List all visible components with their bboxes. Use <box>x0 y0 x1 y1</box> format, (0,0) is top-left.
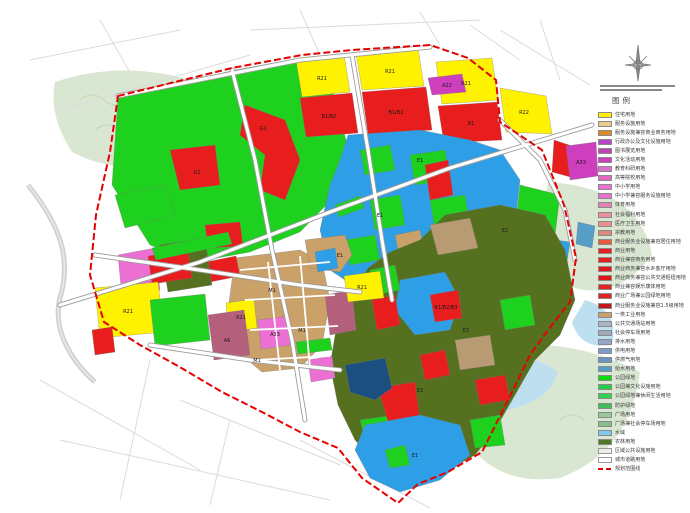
legend-item: 服务设施用地 <box>598 119 690 128</box>
legend-label: 医疗卫生用地 <box>615 221 645 227</box>
legend-item: 供燃气用地 <box>598 356 690 365</box>
legend-item: 住宅用地 <box>598 110 690 119</box>
legend-label: 社会福利用地 <box>615 212 645 218</box>
legend-swatch <box>598 193 612 199</box>
legend-label: 防护绿地 <box>615 403 635 409</box>
legend-label: 商业广场兼公园绿地用地 <box>615 294 671 300</box>
legend-item: 商业商务兼容公共交通枢纽用地 <box>598 274 690 283</box>
scale-segment <box>627 85 645 87</box>
legend-item: 商业服务业设施兼容居住用地 <box>598 237 690 246</box>
legend-item: 社会停车场用地 <box>598 328 690 337</box>
legend-label: 供电用地 <box>615 348 635 354</box>
legend-swatch <box>598 330 612 336</box>
legend-label: 教育科研用地 <box>615 166 645 172</box>
legend-label: 高等院校用地 <box>615 175 645 181</box>
zone-label: E1 <box>417 158 423 164</box>
legend-item: 图书展览用地 <box>598 146 690 155</box>
zone-label: A33 <box>576 160 586 166</box>
legend-label: 给水用地 <box>615 366 635 372</box>
legend-swatch <box>598 184 612 190</box>
legend-swatch <box>598 393 612 399</box>
zone-label: R21 <box>385 69 395 75</box>
legend-swatch <box>598 148 612 154</box>
zoning-map: G1G1R21R21R21R22B1/B2B1/B2B1A22E1E1E1A33… <box>0 0 690 513</box>
legend-label: 公园兼文化设施用地 <box>615 385 661 391</box>
legend-swatch <box>598 266 612 272</box>
legend-swatch <box>598 293 612 299</box>
legend-item: 文化活动用地 <box>598 155 690 164</box>
legend-swatch <box>598 230 612 236</box>
legend-label: 供燃气用地 <box>615 357 640 363</box>
legend-label: 广场用地 <box>615 412 635 418</box>
legend-item: 高等院校用地 <box>598 174 690 183</box>
legend-swatch <box>598 166 612 172</box>
legend-swatch <box>598 221 612 227</box>
legend-label: 广场兼社会停车场用地 <box>615 421 666 427</box>
scale-segment <box>600 85 609 87</box>
legend-swatch <box>598 339 612 345</box>
legend-item: 公共交通场站用地 <box>598 319 690 328</box>
legend-item: 商业服务业设施兼容1.5级用地 <box>598 301 690 310</box>
north-arrow-icon <box>618 42 658 88</box>
legend-item: 社会福利用地 <box>598 210 690 219</box>
legend-label: 一类工业用地 <box>615 312 645 318</box>
legend-item: 防护绿地 <box>598 401 690 410</box>
legend-label: 文化活动用地 <box>615 157 645 163</box>
legend-swatch <box>598 439 612 445</box>
legend-item: 体育用地 <box>598 201 690 210</box>
legend-item: 商业商务兼容水乡客厅用地 <box>598 265 690 274</box>
legend-item: 排水用地 <box>598 337 690 346</box>
zone-label: R21 <box>123 309 133 315</box>
legend-label: 图书展览用地 <box>615 148 645 154</box>
legend-item: 区域公共设施用地 <box>598 446 690 455</box>
legend-label: 住宅用地 <box>615 112 635 118</box>
legend-label: 城市道路用地 <box>615 457 645 463</box>
legend-label: 社会停车场用地 <box>615 330 650 336</box>
legend-item: 公园兼文化设施用地 <box>598 383 690 392</box>
legend-swatch <box>598 412 612 418</box>
zone-label: E1 <box>412 453 418 459</box>
zone-label: G1 <box>259 126 266 132</box>
legend-item: 水域 <box>598 428 690 437</box>
legend-item: 规划范围线 <box>598 465 690 474</box>
legend-label: 农林用地 <box>615 439 635 445</box>
legend-swatch <box>598 175 612 181</box>
legend-label: 商业服务业设施兼容1.5级用地 <box>615 303 684 309</box>
zone-label: M1 <box>298 328 306 334</box>
legend-item: 商业用地 <box>598 246 690 255</box>
legend-swatch <box>598 157 612 163</box>
legend-label: 公园绿地兼休闲生活用地 <box>615 394 671 400</box>
legend-item: 给水用地 <box>598 365 690 374</box>
legend-swatch <box>598 403 612 409</box>
zone-label: M1 <box>268 288 276 294</box>
legend-swatch <box>598 457 612 463</box>
scale-segment <box>609 85 618 87</box>
legend-swatch <box>598 248 612 254</box>
legend-label: 公园绿地 <box>615 376 635 382</box>
legend-swatch <box>598 384 612 390</box>
legend-item: 中小学兼容服务设施用地 <box>598 192 690 201</box>
legend-item: 服务设施兼容商业商务用地 <box>598 128 690 137</box>
legend-swatch <box>598 312 612 318</box>
legend-label: 公共交通场站用地 <box>615 321 655 327</box>
legend-item: 供电用地 <box>598 346 690 355</box>
zone-label: A6 <box>224 338 231 344</box>
legend-item: 广场兼社会停车场用地 <box>598 419 690 428</box>
legend-label: 宗教用地 <box>615 230 635 236</box>
legend-label: 体育用地 <box>615 203 635 209</box>
legend-swatch <box>598 284 612 290</box>
zone-label: E1 <box>337 253 343 259</box>
legend-label: 中小学兼容服务设施用地 <box>615 194 671 200</box>
legend-title: 图例 <box>612 95 633 106</box>
legend-label: 商业用地 <box>615 248 635 254</box>
legend-label: 商业兼容商务用地 <box>615 257 655 263</box>
zone-label: E2 <box>417 388 423 394</box>
legend-label: 商业服务业设施兼容居住用地 <box>615 239 681 245</box>
scale-segment <box>622 89 662 91</box>
legend-item: 商业兼容娱乐康体用地 <box>598 283 690 292</box>
legend-swatch <box>598 430 612 436</box>
scale-segment <box>618 85 627 87</box>
zone-label: A22 <box>442 83 452 89</box>
legend-item: 公园绿地 <box>598 374 690 383</box>
legend-item: 商业广场兼公园绿地用地 <box>598 292 690 301</box>
zone-label: G1 <box>193 170 200 176</box>
legend-swatch <box>598 202 612 208</box>
zone-label: A33 <box>270 332 280 338</box>
legend-label: 排水用地 <box>615 339 635 345</box>
legend-label: 水域 <box>615 430 625 436</box>
legend-swatch <box>598 348 612 354</box>
zone-label: B1/B2 <box>322 114 337 120</box>
legend-item: 宗教用地 <box>598 228 690 237</box>
legend-item: 教育科研用地 <box>598 165 690 174</box>
legend-swatch <box>598 257 612 263</box>
legend-item: 农林用地 <box>598 437 690 446</box>
legend-swatch <box>598 121 612 127</box>
legend-label: 服务设施兼容商业商务用地 <box>615 130 676 136</box>
legend-swatch <box>598 421 612 427</box>
zone-label: M1 <box>253 358 261 364</box>
zone-label: E1 <box>377 213 383 219</box>
legend-item: 城市道路用地 <box>598 456 690 465</box>
legend-item: 行政办公及文化设施用地 <box>598 137 690 146</box>
zone-label: R22 <box>519 110 529 116</box>
legend-swatch <box>598 303 612 309</box>
legend-swatch <box>598 375 612 381</box>
planning-map-sheet: G1G1R21R21R21R22B1/B2B1/B2B1A22E1E1E1A33… <box>0 0 690 513</box>
legend-label: 规划范围线 <box>615 466 640 472</box>
zone-label: B1/B2 <box>389 110 404 116</box>
zone-label: E2 <box>502 228 508 234</box>
zone-label: R21 <box>236 315 246 321</box>
legend-swatch <box>598 139 612 145</box>
legend-swatch <box>598 321 612 327</box>
legend-swatch <box>598 212 612 218</box>
legend-swatch <box>598 357 612 363</box>
legend: 住宅用地服务设施用地服务设施兼容商业商务用地行政办公及文化设施用地图书展览用地文… <box>598 110 690 474</box>
legend-label: 区域公共设施用地 <box>615 448 655 454</box>
legend-item: 中小学用地 <box>598 183 690 192</box>
legend-swatch <box>598 130 612 136</box>
legend-swatch <box>598 275 612 281</box>
legend-label: 行政办公及文化设施用地 <box>615 139 671 145</box>
legend-item: 公园绿地兼休闲生活用地 <box>598 392 690 401</box>
legend-swatch <box>598 448 612 454</box>
zone-label: R21 <box>461 81 471 87</box>
legend-label: 商业商务兼容水乡客厅用地 <box>615 266 676 272</box>
scale-segment <box>645 85 675 87</box>
legend-swatch <box>598 468 612 470</box>
legend-label: 中小学用地 <box>615 185 640 191</box>
legend-swatch <box>598 366 612 372</box>
scale-segment <box>600 89 622 91</box>
zone-label: B1/B2/B3 <box>434 305 457 311</box>
legend-item: 医疗卫生用地 <box>598 219 690 228</box>
zone-label: R21 <box>357 285 367 291</box>
legend-label: 服务设施用地 <box>615 121 645 127</box>
legend-label: 商业兼容娱乐康体用地 <box>615 285 666 291</box>
legend-item: 一类工业用地 <box>598 310 690 319</box>
legend-item: 商业兼容商务用地 <box>598 256 690 265</box>
legend-swatch <box>598 239 612 245</box>
scale-bar <box>600 85 686 93</box>
legend-label: 商业商务兼容公共交通枢纽用地 <box>615 275 686 281</box>
legend-swatch <box>598 112 612 118</box>
legend-item: 广场用地 <box>598 410 690 419</box>
zone-label: E2 <box>463 328 469 334</box>
zone-label: R21 <box>317 76 327 82</box>
zone-label: B1 <box>468 121 475 127</box>
map-margin-panel: 图例 住宅用地服务设施用地服务设施兼容商业商务用地行政办公及文化设施用地图书展览… <box>596 0 690 513</box>
